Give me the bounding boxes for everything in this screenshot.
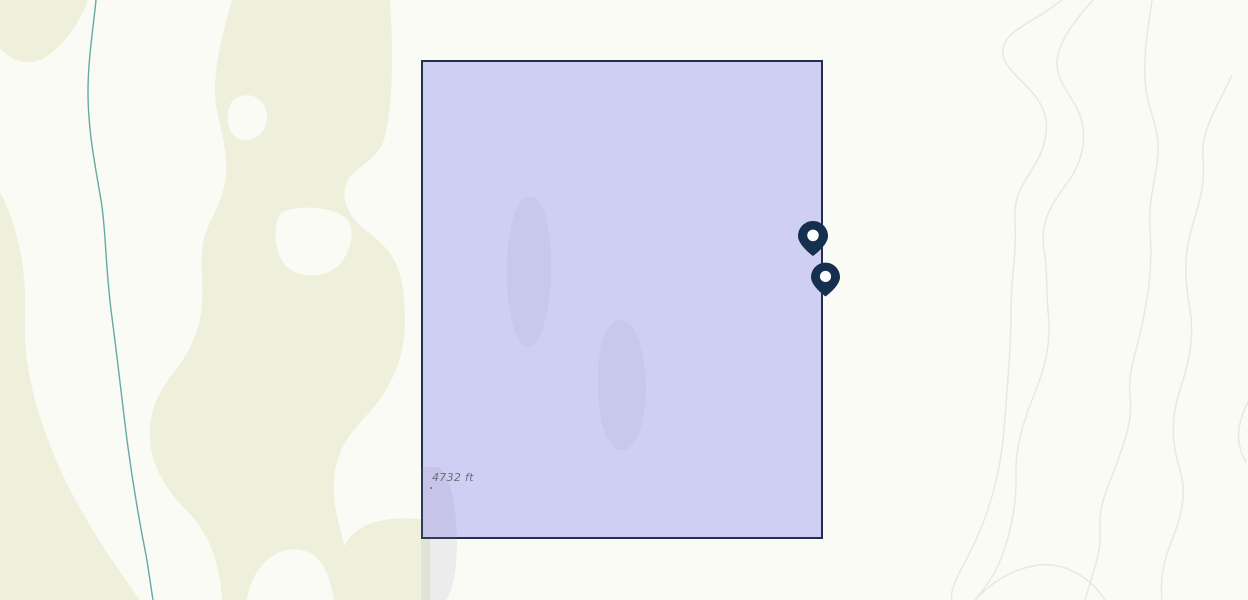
terrain-underlay-blob [421, 467, 457, 600]
terrain-underlay-blob [598, 320, 646, 450]
map-marker-1[interactable] [798, 221, 828, 256]
map-pin-icon [798, 221, 828, 256]
selection-rectangle[interactable] [421, 60, 823, 539]
elevation-label: 4732 ft [432, 471, 474, 484]
map-pin-icon [811, 262, 840, 297]
elevation-spot-dot [430, 487, 432, 489]
terrain-underlay-blob [507, 197, 551, 347]
map-canvas[interactable]: 4732 ft [0, 0, 1248, 600]
map-marker-2[interactable] [811, 262, 840, 297]
